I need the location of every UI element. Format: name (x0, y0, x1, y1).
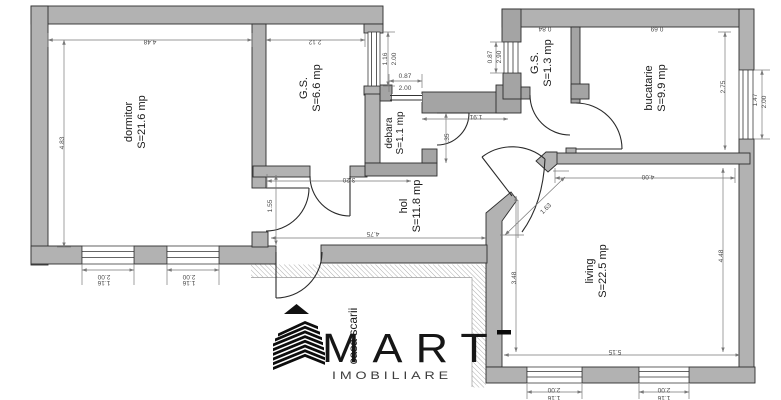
svg-text:2.00: 2.00 (182, 273, 195, 280)
svg-text:hol: hol (398, 199, 410, 214)
svg-text:5.15: 5.15 (608, 348, 621, 355)
svg-text:S=22.5 mp: S=22.5 mp (597, 244, 609, 298)
svg-text:S=1.3 mp: S=1.3 mp (542, 39, 554, 86)
svg-text:1.91: 1.91 (469, 113, 482, 120)
svg-text:2.12: 2.12 (308, 38, 321, 45)
svg-text:1.16: 1.16 (382, 52, 389, 65)
svg-text:2.00: 2.00 (97, 273, 110, 280)
svg-text:2.00: 2.00 (391, 52, 398, 65)
svg-text:4.75: 4.75 (366, 230, 379, 237)
svg-text:MART: MART (322, 325, 501, 371)
svg-text:1.16: 1.16 (657, 394, 670, 400)
svg-text:2.00: 2.00 (657, 386, 670, 393)
svg-text:0.84: 0.84 (538, 25, 551, 32)
svg-text:1.16: 1.16 (547, 394, 560, 400)
svg-text:2.90: 2.90 (496, 50, 503, 63)
svg-text:0.87: 0.87 (487, 50, 494, 63)
svg-text:bucatarie: bucatarie (643, 65, 655, 110)
svg-text:S=1.1 mp: S=1.1 mp (395, 111, 406, 155)
svg-text:G.S.: G.S. (529, 52, 541, 74)
svg-text:S=11.8 mp: S=11.8 mp (411, 180, 423, 233)
svg-text:3.20: 3.20 (342, 176, 355, 183)
svg-text:1.47: 1.47 (752, 93, 759, 106)
svg-text:dormitor: dormitor (123, 101, 135, 142)
svg-text:4.48: 4.48 (718, 249, 725, 262)
svg-text:1.55: 1.55 (267, 199, 274, 212)
svg-text:2.00: 2.00 (761, 95, 768, 108)
svg-text:S=21.6 mp: S=21.6 mp (136, 95, 148, 149)
svg-text:2.00: 2.00 (399, 85, 412, 92)
svg-text:G.S.: G.S. (298, 77, 310, 99)
svg-text:debara: debara (384, 117, 395, 149)
svg-text:4.00: 4.00 (641, 173, 654, 180)
svg-text:S=9.9 mp: S=9.9 mp (656, 64, 668, 111)
svg-text:2.00: 2.00 (547, 386, 560, 393)
svg-text:4.48: 4.48 (143, 38, 156, 45)
svg-text:IMOBILIARE: IMOBILIARE (332, 370, 452, 382)
svg-text:living: living (584, 258, 596, 283)
svg-text:S=6.6 mp: S=6.6 mp (311, 64, 323, 111)
svg-text:3.48: 3.48 (511, 271, 518, 284)
svg-text:2.75: 2.75 (720, 80, 727, 93)
svg-text:.35: .35 (444, 133, 451, 142)
svg-text:0.69: 0.69 (650, 25, 663, 32)
svg-text:0.87: 0.87 (399, 73, 412, 80)
svg-text:4.83: 4.83 (59, 136, 66, 149)
